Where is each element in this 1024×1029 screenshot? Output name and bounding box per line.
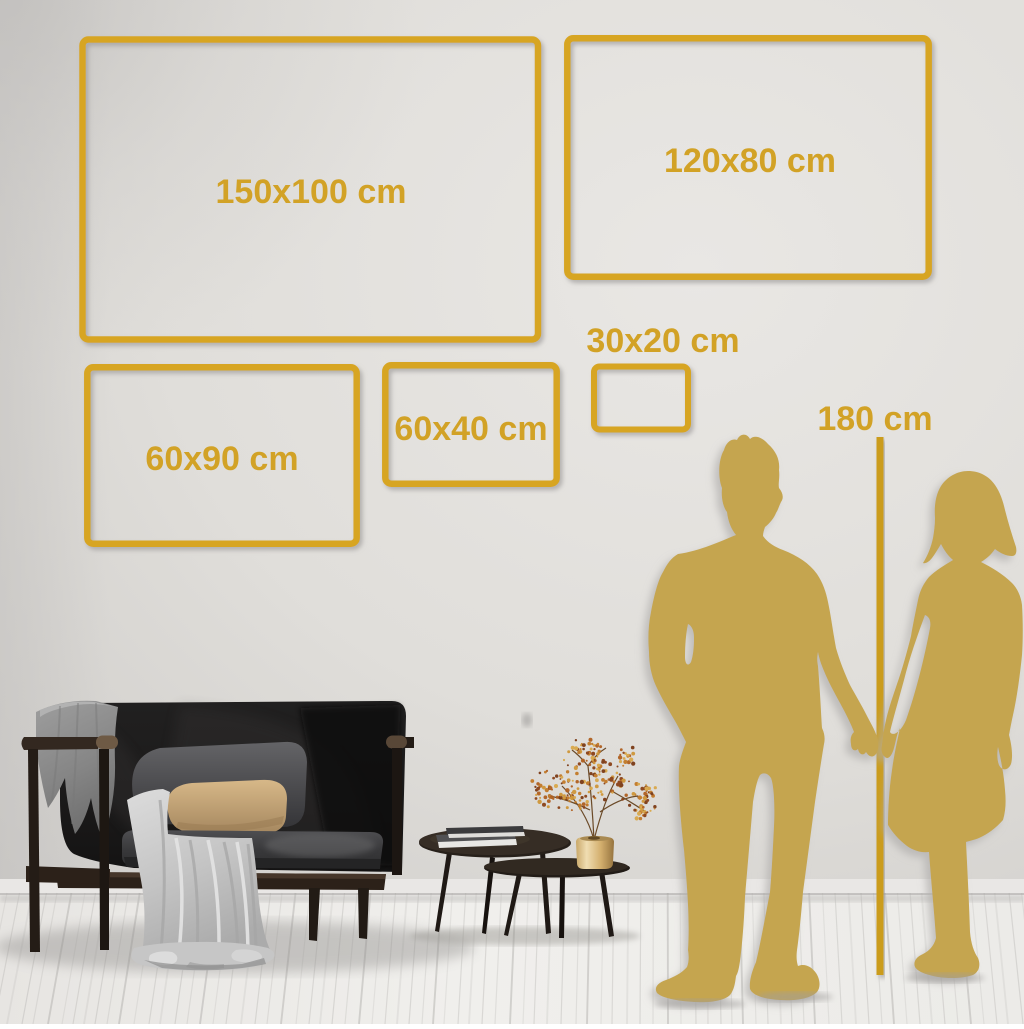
svg-text:60x90 cm: 60x90 cm [145, 440, 298, 478]
svg-text:120x80 cm: 120x80 cm [664, 142, 836, 180]
svg-text:30x20 cm: 30x20 cm [586, 322, 739, 360]
svg-text:180 cm: 180 cm [817, 400, 932, 438]
svg-text:60x40 cm: 60x40 cm [394, 410, 547, 448]
svg-text:150x100 cm: 150x100 cm [216, 173, 407, 211]
